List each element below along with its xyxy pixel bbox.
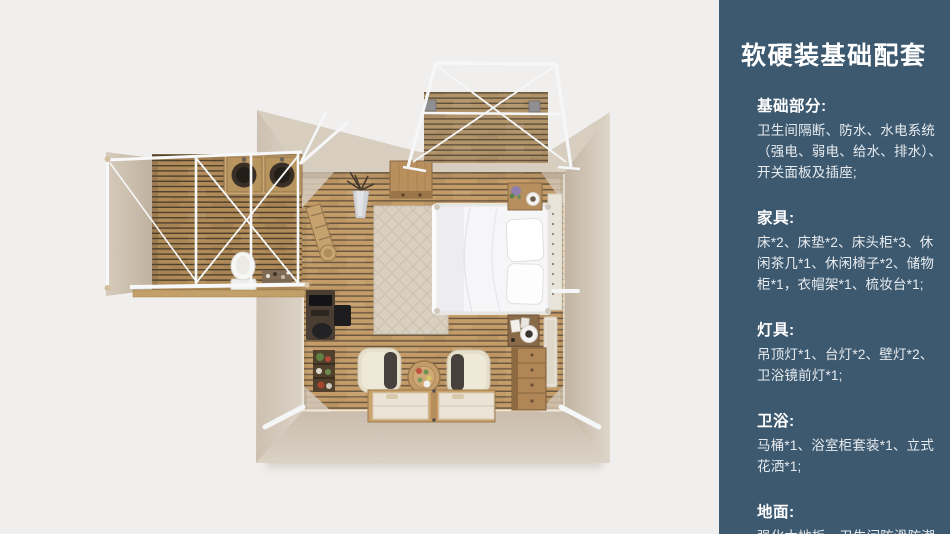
panel-title: 软硬装基础配套 — [741, 42, 950, 71]
double-sink-vanity — [224, 155, 302, 195]
storage-basket — [320, 245, 336, 261]
spec-section-label: 灯具: — [757, 318, 945, 340]
spec-section-furniture: 家具: 床*2、床垫*2、床头柜*3、休闲茶几*1、休闲椅子*2、储物柜*1，衣… — [757, 206, 945, 295]
plant-shelf — [313, 350, 335, 392]
bathroom-wing — [105, 152, 310, 297]
spec-section-label: 地面: — [757, 500, 945, 522]
spec-section-label: 基础部分: — [757, 94, 945, 116]
frame-knob — [105, 285, 111, 291]
floorplan-svg — [0, 0, 719, 534]
wing-threshold — [133, 290, 305, 297]
slide-canvas: 软硬装基础配套 基础部分: 卫生间隔断、防水、水电系统（强电、弱电、给水、排水）… — [0, 0, 950, 534]
dresser — [512, 348, 546, 410]
frame-knob — [105, 156, 111, 162]
info-panel: 软硬装基础配套 基础部分: 卫生间隔断、防水、水电系统（强电、弱电、给水、排水）… — [719, 0, 950, 534]
coffee-table — [408, 361, 440, 393]
lounge-chair-right — [447, 350, 490, 395]
floorplan-render — [0, 0, 719, 534]
spec-section-body: 卫生间隔断、防水、水电系统（强电、弱电、给水、排水）、开关面板及插座; — [757, 120, 945, 183]
nightstand-top — [508, 183, 542, 210]
spec-section-bath: 卫浴: 马桶*1、浴室柜套装*1、立式花洒*1; — [757, 409, 945, 477]
lounge-chair-left — [358, 348, 401, 393]
spec-section-floor: 地面: 强化木地板、卫生间防滑防潮石塑板; — [757, 500, 945, 534]
spec-section-basics: 基础部分: 卫生间隔断、防水、水电系统（强电、弱电、给水、排水）、开关面板及插座… — [757, 94, 945, 183]
spec-section-lighting: 灯具: 吊顶灯*1、台灯*2、壁灯*2、卫浴镜前灯*1; — [757, 318, 945, 386]
spec-section-body: 马桶*1、浴室柜套装*1、立式花洒*1; — [757, 435, 945, 477]
wardrobe — [390, 161, 432, 198]
spec-section-body: 强化木地板、卫生间防滑防潮石塑板; — [757, 526, 945, 534]
floor-mattress-platform — [368, 389, 495, 422]
monitor — [309, 295, 332, 306]
desk-chair — [334, 305, 351, 326]
spec-section-body: 床*2、床垫*2、床头柜*3、休闲茶几*1、休闲椅子*2、储物柜*1，衣帽架*1… — [757, 232, 945, 295]
toiletry-tray — [262, 270, 292, 284]
spec-section-body: 吊顶灯*1、台灯*2、壁灯*2、卫浴镜前灯*1; — [757, 344, 945, 386]
spec-section-label: 卫浴: — [757, 409, 945, 431]
nightstand-bottom — [508, 315, 539, 346]
spec-section-label: 家具: — [757, 206, 945, 228]
spec-sections: 基础部分: 卫生间隔断、防水、水电系统（强电、弱电、给水、排水）、开关面板及插座… — [757, 94, 945, 534]
